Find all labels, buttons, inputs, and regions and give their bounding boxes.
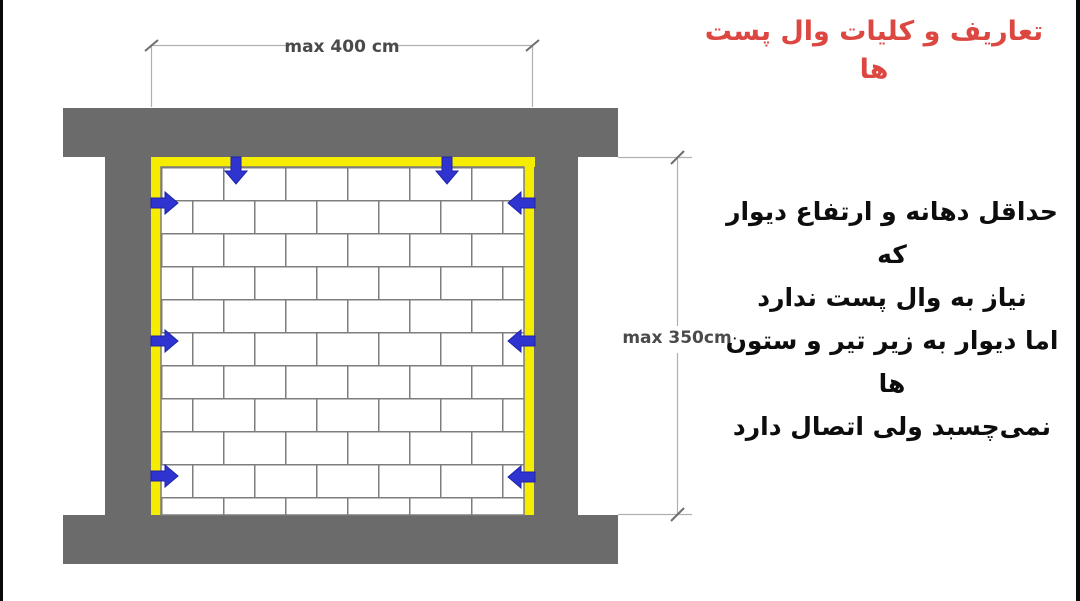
right-column <box>534 156 578 516</box>
slide-title: تعاریف و کلیات وال پست ها <box>688 13 1060 89</box>
slide-body: حداقل دهانه و ارتفاع دیوار که نیاز به وا… <box>712 190 1072 448</box>
wall-diagram: max 400 cm max 350cm <box>0 0 760 601</box>
top-beam <box>63 108 618 157</box>
body-line-3: اما دیوار به زیر تیر و ستون ها <box>712 319 1072 405</box>
left-edge-bar <box>0 0 3 601</box>
body-line-4: نمی‌چسبد ولی اتصال دارد <box>712 405 1072 448</box>
body-line-2: نیاز به وال پست ندارد <box>712 276 1072 319</box>
left-column <box>105 156 151 516</box>
wallpost-top-strip <box>151 157 535 167</box>
bottom-beam <box>63 515 618 564</box>
slide: max 400 cm max 350cm تعاریف و کلیات وال … <box>0 0 1080 601</box>
width-dimension-label: max 400 cm <box>284 37 399 57</box>
brick-wall <box>161 167 524 515</box>
right-edge-bar <box>1076 0 1080 601</box>
body-line-1: حداقل دهانه و ارتفاع دیوار که <box>712 190 1072 276</box>
